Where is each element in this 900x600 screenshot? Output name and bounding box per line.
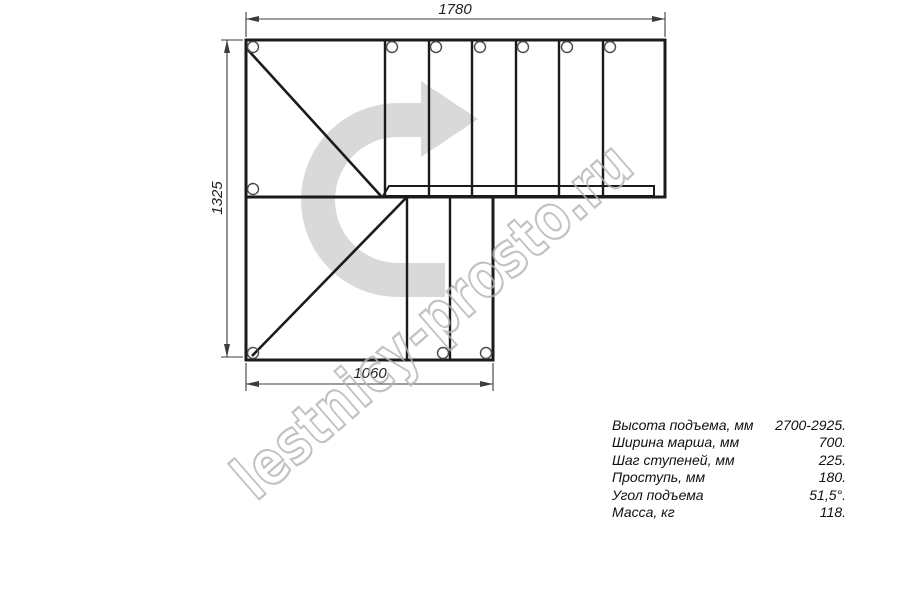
spec-value: 700. xyxy=(819,434,846,451)
spec-row-step-pitch: Шаг ступеней, мм 225. xyxy=(612,452,846,469)
spec-value: 180. xyxy=(819,469,846,486)
spec-value: 2700-2925. xyxy=(775,417,846,434)
spec-row-mass: Масса, кг 118. xyxy=(612,504,846,521)
dim-arrow-right-icon xyxy=(480,381,493,387)
spec-value: 225. xyxy=(819,452,846,469)
spec-label: Масса, кг xyxy=(612,504,675,521)
spec-row-rise-height: Высота подъема, мм 2700-2925. xyxy=(612,417,846,434)
spec-label: Угол подъема xyxy=(612,487,704,504)
spec-label: Шаг ступеней, мм xyxy=(612,452,735,469)
spec-label: Высота подъема, мм xyxy=(612,417,754,434)
spec-row-flight-width: Ширина марша, мм 700. xyxy=(612,434,846,451)
dim-arrow-right-icon xyxy=(652,16,665,22)
spec-table: Высота подъема, мм 2700-2925. Ширина мар… xyxy=(612,417,846,521)
dimension-top: 1780 xyxy=(246,1,665,37)
dim-arrow-down-icon xyxy=(224,344,230,357)
spec-value: 51,5°. xyxy=(809,487,846,504)
spec-value: 118. xyxy=(820,504,846,521)
spec-row-tread: Проступь, мм 180. xyxy=(612,469,846,486)
dimension-left: 1325 xyxy=(209,40,243,357)
staircase-drawing-canvas: 1780 1325 1060 lestnicy-prosto xyxy=(0,0,900,600)
dimension-top-value: 1780 xyxy=(438,1,472,18)
watermark: lestnicy-prosto.ru xyxy=(218,127,647,513)
spec-label: Ширина марша, мм xyxy=(612,434,739,451)
dimension-left-value: 1325 xyxy=(209,181,226,215)
spec-row-climb-angle: Угол подъема 51,5°. xyxy=(612,487,846,504)
dim-arrow-up-icon xyxy=(224,40,230,53)
dim-arrow-left-icon xyxy=(246,16,259,22)
dim-arrow-left-icon xyxy=(246,381,259,387)
direction-arrow-icon xyxy=(318,81,478,280)
spec-label: Проступь, мм xyxy=(612,469,705,486)
